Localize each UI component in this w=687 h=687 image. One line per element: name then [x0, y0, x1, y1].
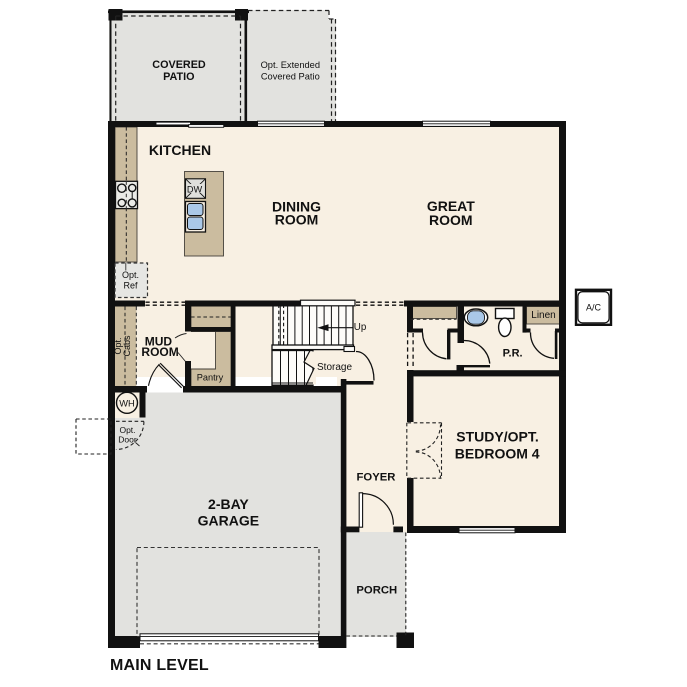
svg-text:PORCH: PORCH — [356, 585, 397, 597]
svg-text:Covered Patio: Covered Patio — [261, 71, 320, 81]
svg-text:2-BAY: 2-BAY — [208, 496, 249, 512]
svg-text:ROOM: ROOM — [141, 345, 178, 359]
svg-text:DW: DW — [187, 185, 203, 195]
svg-text:Storage: Storage — [317, 362, 352, 373]
svg-text:P.R.: P.R. — [503, 348, 523, 360]
svg-text:ROOM: ROOM — [429, 212, 473, 228]
svg-text:Cabs: Cabs — [122, 335, 132, 357]
svg-text:Linen: Linen — [531, 310, 555, 321]
svg-text:ROOM: ROOM — [275, 212, 319, 228]
svg-text:Pantry: Pantry — [197, 373, 224, 383]
svg-text:KITCHEN: KITCHEN — [149, 142, 211, 158]
svg-text:Opt.: Opt. — [122, 270, 139, 280]
svg-text:A/C: A/C — [586, 303, 602, 313]
svg-text:Up: Up — [354, 322, 367, 333]
svg-text:MAIN LEVEL: MAIN LEVEL — [110, 657, 209, 674]
svg-text:Door: Door — [118, 435, 137, 445]
svg-text:FOYER: FOYER — [357, 472, 396, 484]
svg-text:Opt.: Opt. — [119, 425, 135, 435]
svg-text:PATIO: PATIO — [163, 71, 194, 83]
svg-text:Opt. Extended: Opt. Extended — [261, 60, 320, 70]
svg-text:COVERED: COVERED — [152, 59, 206, 71]
svg-text:GARAGE: GARAGE — [198, 513, 259, 529]
svg-text:STUDY/OPT.: STUDY/OPT. — [456, 429, 538, 445]
svg-text:BEDROOM 4: BEDROOM 4 — [455, 446, 540, 462]
svg-text:Ref: Ref — [123, 281, 138, 291]
svg-text:WH: WH — [119, 398, 135, 408]
